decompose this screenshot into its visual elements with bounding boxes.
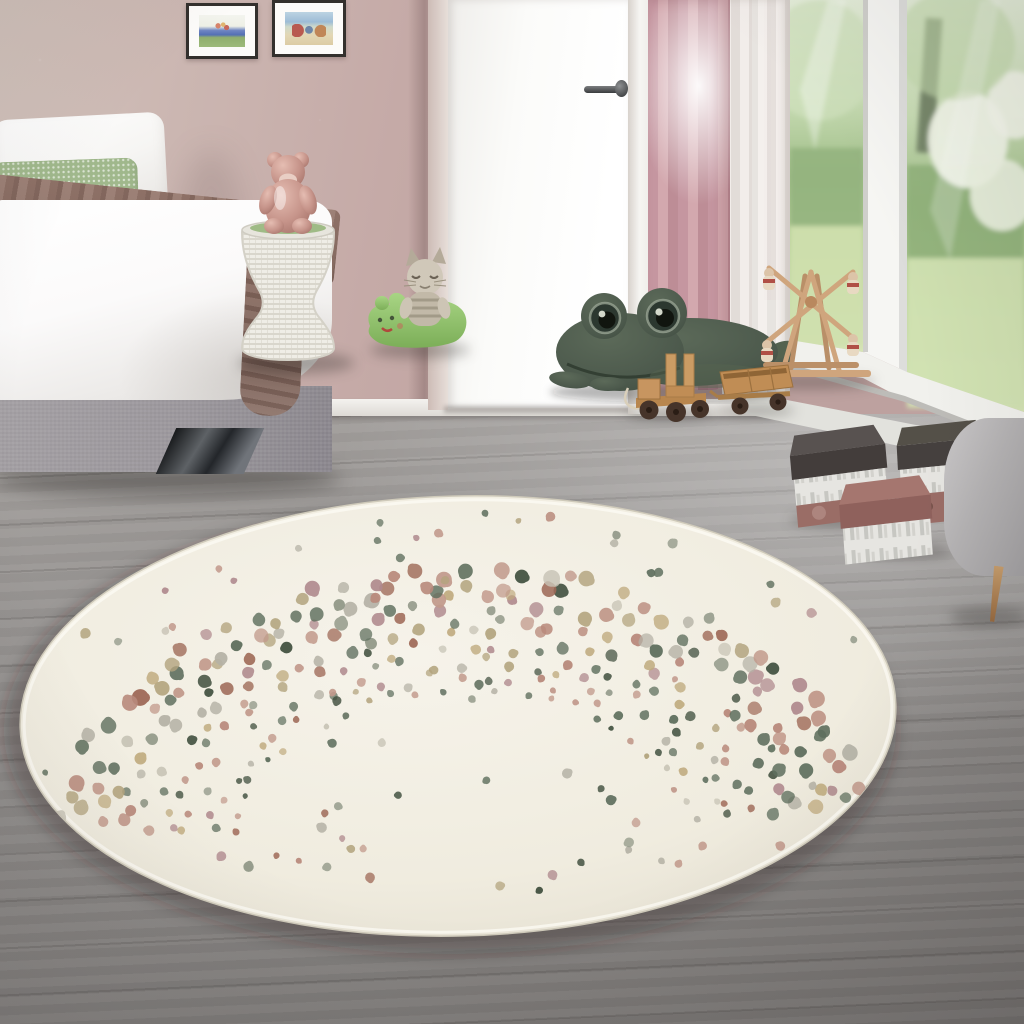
chair-shadow [950,608,1024,626]
armchair [944,418,1024,576]
truck-wheels [640,400,710,422]
wooden-truck-toy [616,348,718,428]
room-scene [0,0,1024,1024]
storage-box-mauve-lid [837,475,935,565]
